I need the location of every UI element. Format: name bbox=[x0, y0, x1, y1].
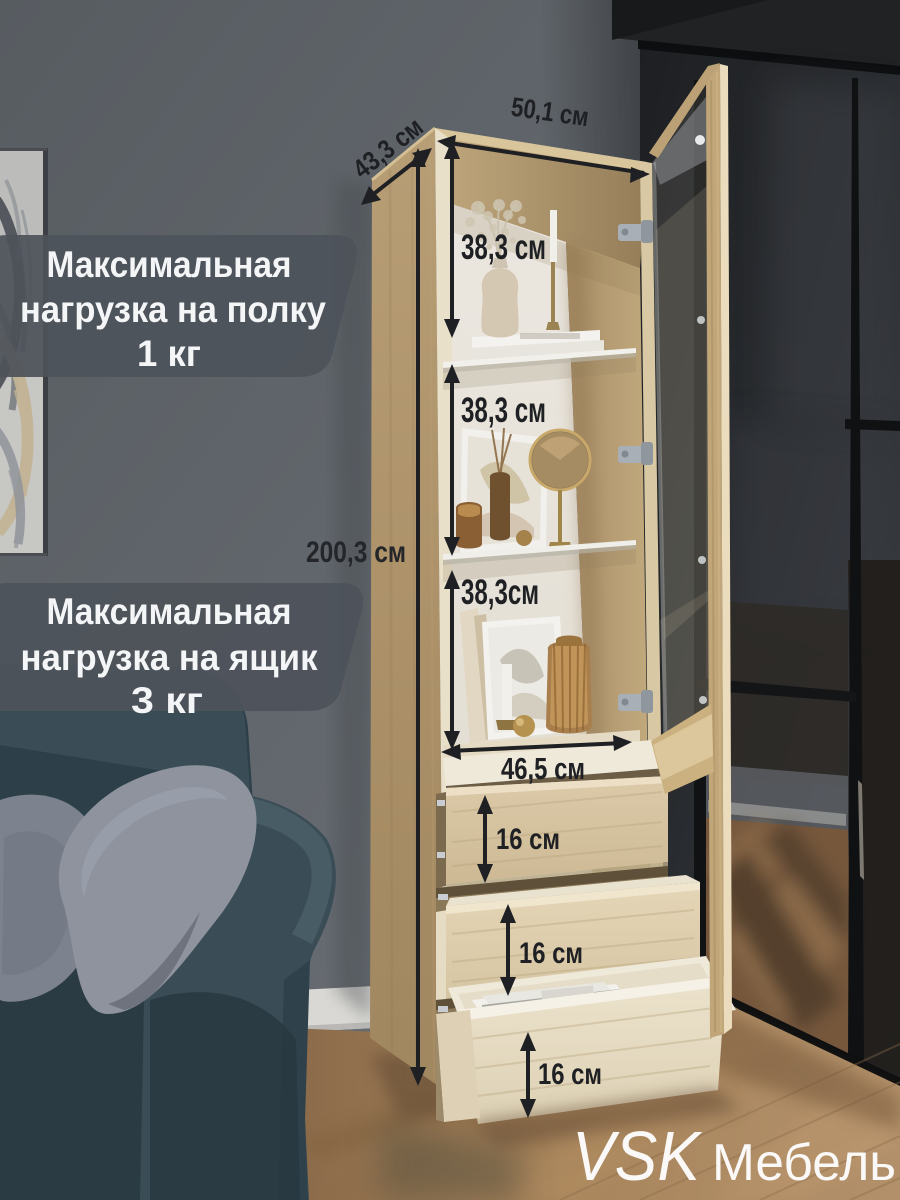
svg-text:1 кг: 1 кг bbox=[137, 333, 201, 374]
svg-text:38,3 см: 38,3 см bbox=[461, 228, 546, 267]
svg-text:38,3см: 38,3см bbox=[461, 573, 539, 612]
svg-text:Максимальная: Максимальная bbox=[47, 244, 292, 285]
svg-text:VSK: VSK bbox=[572, 1117, 703, 1195]
svg-text:Мебель: Мебель bbox=[712, 1134, 896, 1192]
svg-text:нагрузка на полку: нагрузка на полку bbox=[20, 289, 326, 330]
svg-text:16 см: 16 см bbox=[496, 823, 560, 856]
svg-text:Максимальная: Максимальная bbox=[47, 591, 292, 632]
svg-text:38,3 см: 38,3 см bbox=[461, 391, 546, 430]
svg-text:16 см: 16 см bbox=[519, 937, 583, 970]
svg-text:нагрузка на ящик: нагрузка на ящик bbox=[21, 637, 318, 678]
svg-text:16 см: 16 см bbox=[538, 1058, 602, 1091]
svg-text:3 кг: 3 кг bbox=[131, 680, 203, 721]
svg-text:200,3 см: 200,3 см bbox=[306, 536, 406, 569]
svg-text:46,5 см: 46,5 см bbox=[501, 751, 585, 786]
